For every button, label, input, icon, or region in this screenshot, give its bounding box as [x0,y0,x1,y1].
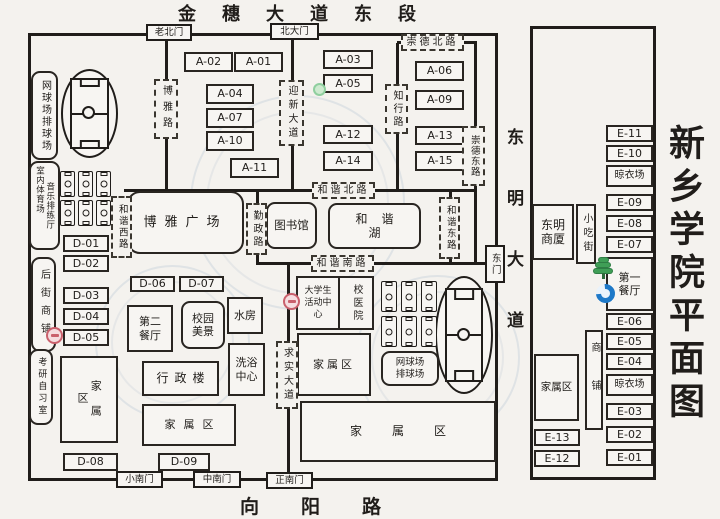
basketball-court-icon [381,316,397,347]
top-road-name: 金穗大道东段 [178,0,442,26]
basketball-court-icon [78,200,93,226]
building-e11: E-11 [606,125,653,142]
building-a05: A-05 [323,74,373,93]
facility-dongming-mall: 东明商厦 [532,204,574,260]
facility-hexie-lake: 和谐湖 [328,203,421,249]
facility-drying-area-north: 晾衣场 [606,165,653,187]
gate-south-small: 小南门 [116,471,163,488]
red-marker-icon [283,293,300,310]
basketball-court-icon [421,316,437,347]
basketball-court-icon [401,281,417,312]
building-d08: D-08 [63,453,118,471]
road-label-chongde-north: 崇德北路 [401,34,464,51]
building-e12: E-12 [534,450,580,467]
building-e03: E-03 [606,403,653,420]
building-d09: D-09 [158,453,210,471]
road-label-hexie-north: 和谐北路 [312,182,375,199]
facility-indoor-stadium-music: 室内体育场 音乐排练厅 [29,161,60,250]
center-circle [457,328,470,341]
facility-water-house: 水房 [227,297,263,334]
green-dot-icon [313,83,326,96]
facility-family-area-mid: 家属区 [297,333,371,396]
building-e07: E-07 [606,236,653,253]
facility-family-area-center: 家属区 [142,404,236,446]
road-label-qinzheng: 勤政路 [246,203,267,255]
building-a15: A-15 [415,151,465,171]
building-d03: D-03 [63,287,109,304]
facility-indoor-stadium: 室内体育场 [34,166,44,214]
facility-music-rehearsal: 音乐排练厅 [45,182,55,230]
goal-box [454,288,474,300]
building-a01: A-01 [234,52,283,72]
gate-old-north: 老北门 [146,24,192,41]
road-label-yingxin: 迎新大道 [279,80,304,146]
gate-south-main: 正南门 [266,472,313,489]
building-d04: D-04 [63,308,109,325]
building-e10: E-10 [606,145,653,162]
facility-student-center-block: 大学生活动中心 校医院 [296,276,374,330]
facility-drying-area-south: 晾衣场 [606,374,653,396]
building-e08: E-08 [606,215,653,232]
road-label-hexie-east: 和谐东路 [439,197,460,259]
basketball-court-icon [96,171,111,197]
facility-student-center: 大学生活动中心 [298,278,340,328]
goal-box [79,140,99,149]
road-label-hexie-west: 和谐西路 [111,196,132,258]
building-a13: A-13 [415,126,465,145]
map-title: 新乡学院平面图 [658,124,710,464]
building-a10: A-10 [206,131,254,151]
center-circle [82,106,95,119]
building-e05: E-05 [606,333,653,350]
bottom-road-name: 向阳路 [240,492,423,519]
facility-second-canteen: 第二餐厅 [127,305,173,352]
facility-tennis-volleyball-left: 网球场排球场 [31,71,58,160]
facility-bath-center: 洗浴中心 [228,343,265,396]
tree-icon [592,256,614,281]
goal-box [454,370,474,382]
facility-snack-street: 小吃街 [576,204,596,264]
building-a03: A-03 [323,50,373,69]
basketball-courts-middle [381,281,438,347]
basketball-court-icon [60,200,75,226]
building-d06: D-06 [130,276,175,292]
road-label-boya: 博雅路 [154,79,178,139]
basketball-court-icon [401,316,417,347]
building-e09: E-09 [606,194,653,211]
road-label-hexie-south: 和谐南路 [311,255,374,272]
building-e13: E-13 [534,429,580,446]
road-label-chongde-east: 崇德东路 [462,126,485,186]
building-d02: D-02 [63,255,109,272]
building-e01: E-01 [606,449,653,466]
facility-study-room: 考研自习室 [29,349,53,425]
building-a07: A-07 [206,108,254,128]
building-a02: A-02 [184,52,233,72]
building-a12: A-12 [323,125,373,144]
campus-map: 博雅路 迎新大道 知行路 崇德北路 崇德东路 和谐西路 和谐北路 勤政路 和谐东… [0,0,720,519]
facility-boya-square: 博雅广场 [127,191,244,254]
facility-campus-scenery: 校园美景 [181,301,225,349]
building-d05: D-05 [63,329,109,346]
facility-school-hospital: 校医院 [340,278,372,328]
building-e06: E-06 [606,313,653,330]
building-e04: E-04 [606,353,653,370]
red-marker-icon [46,327,63,344]
football-pitch [445,288,483,382]
basketball-court-icon [381,281,397,312]
building-a11: A-11 [230,158,279,178]
road-label-zhixing: 知行路 [385,84,408,134]
facility-family-area-south: 家属区 [300,401,496,462]
road-label-qiushi: 求实大道 [276,341,298,409]
goal-box [79,78,99,87]
facility-family-area-west: 家属区 [60,356,118,443]
building-a14: A-14 [323,151,373,171]
basketball-court-icon [60,171,75,197]
facility-tennis-volleyball-mid: 网球场排球场 [381,351,439,386]
building-d01: D-01 [63,235,109,252]
facility-library: 图书馆 [266,202,317,249]
building-e02: E-02 [606,426,653,443]
building-a09: A-09 [415,90,464,110]
basketball-courts-left [60,171,113,226]
football-pitch [70,78,109,149]
basketball-court-icon [96,200,111,226]
gate-south-middle: 中南门 [193,471,241,488]
basketball-court-icon [78,171,93,197]
building-a04: A-04 [206,84,254,104]
facility-admin-building: 行政楼 [142,361,219,396]
building-d07: D-07 [179,276,224,292]
basketball-court-icon [421,281,437,312]
facility-shops-east: 商铺 [585,330,603,430]
east-avenue-name: 东明大道 [501,128,526,358]
facility-family-area-east: 家属区 [534,354,579,421]
building-a06: A-06 [415,61,464,81]
